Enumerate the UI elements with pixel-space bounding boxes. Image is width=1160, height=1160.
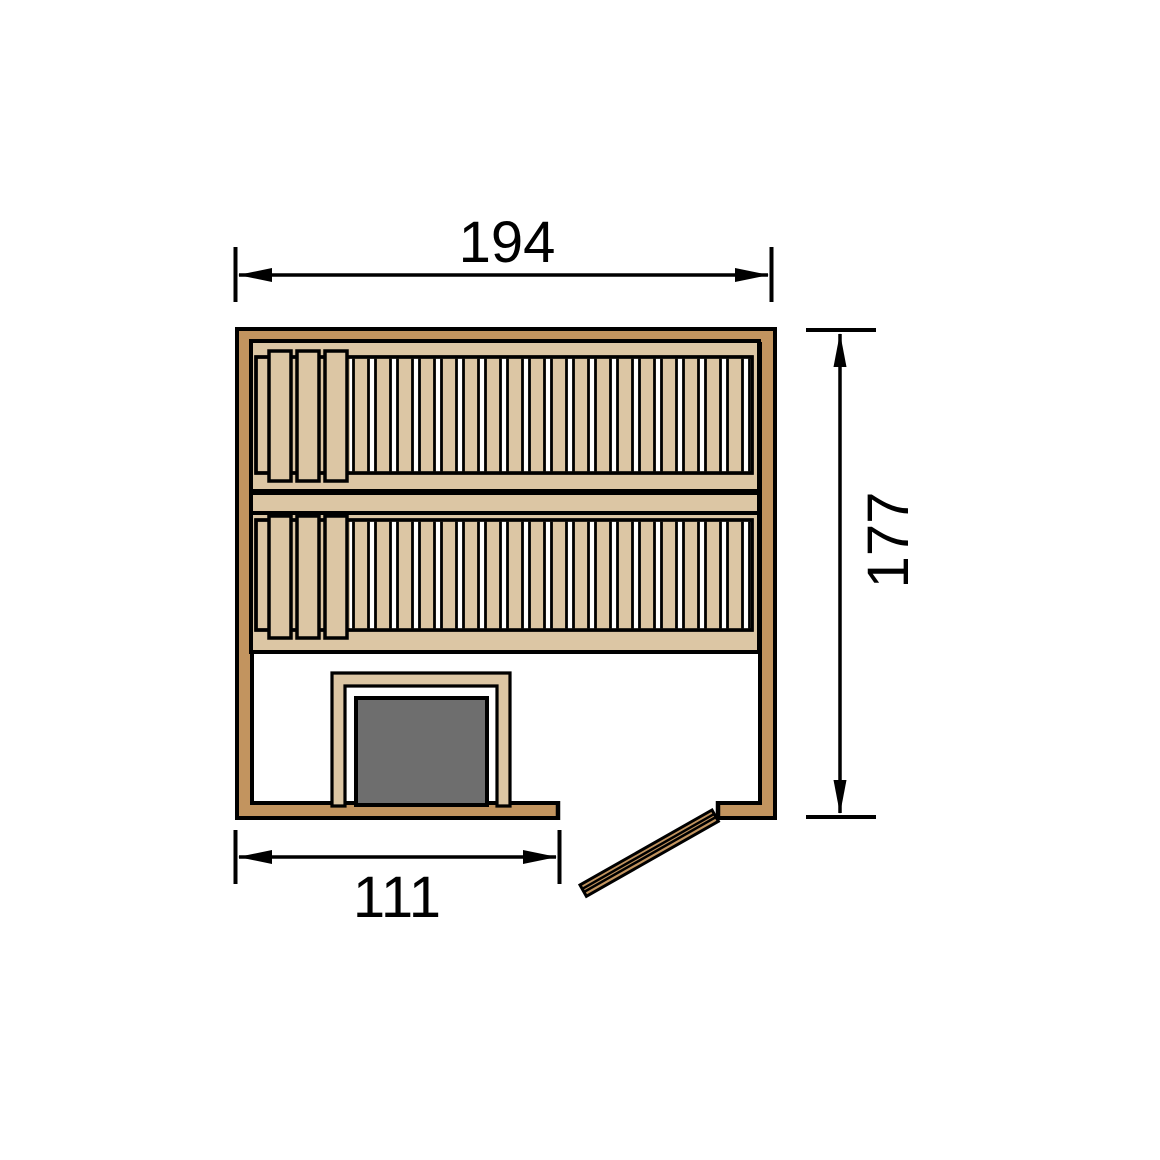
upper-backrest-board-1: [269, 351, 291, 481]
dimension-right-label: 177: [856, 492, 921, 589]
sauna-floor-plan-page: 194 177 111: [0, 0, 1160, 1160]
upper-backrest-board-3: [325, 351, 347, 481]
lower-backrest-board-1: [269, 516, 291, 638]
lower-backrest-board-3: [325, 516, 347, 638]
dimension-bottom-label: 111: [353, 865, 441, 930]
lower-backrest-board-2: [297, 516, 319, 638]
upper-bench: [251, 341, 759, 491]
upper-backrest-board-2: [297, 351, 319, 481]
lower-bench-slats: [350, 522, 750, 629]
heater: [356, 698, 487, 805]
lower-bench: [251, 513, 759, 652]
sauna-floor-plan-drawing: 194 177 111: [0, 0, 1160, 1160]
bench-front-strip: [251, 493, 759, 513]
upper-bench-slats: [350, 359, 750, 472]
dimension-top-label: 194: [459, 210, 556, 275]
